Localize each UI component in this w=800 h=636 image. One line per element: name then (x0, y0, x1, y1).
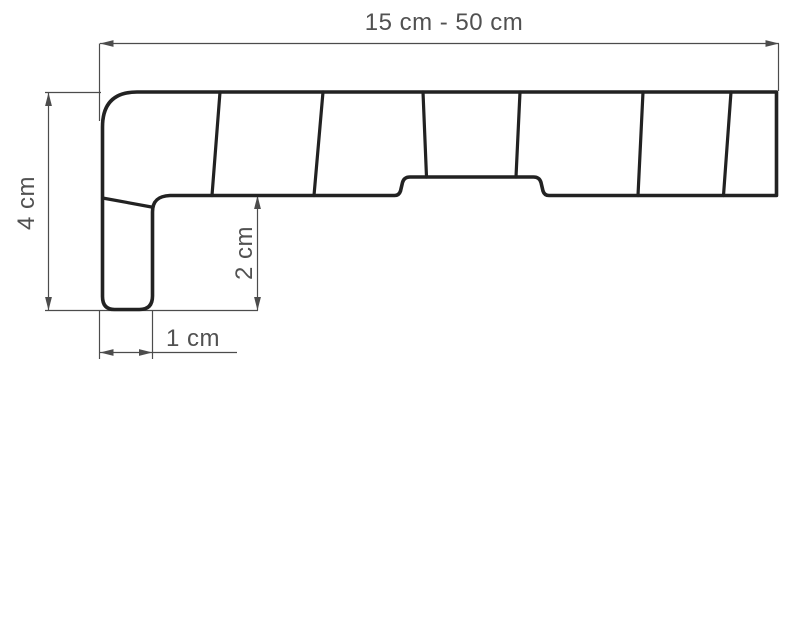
technical-drawing-canvas: 15 cm - 50 cm 4 cm 2 cm 1 cm (0, 0, 800, 636)
width-dimension-label: 15 cm - 50 cm (365, 9, 524, 36)
depth-dimension-label: 2 cm (231, 226, 258, 280)
foot-dimension-label: 1 cm (166, 325, 220, 352)
height-dimension-label: 4 cm (13, 176, 40, 230)
window-sill-cross-section-diagram: 15 cm - 50 cm 4 cm 2 cm 1 cm (0, 0, 800, 636)
